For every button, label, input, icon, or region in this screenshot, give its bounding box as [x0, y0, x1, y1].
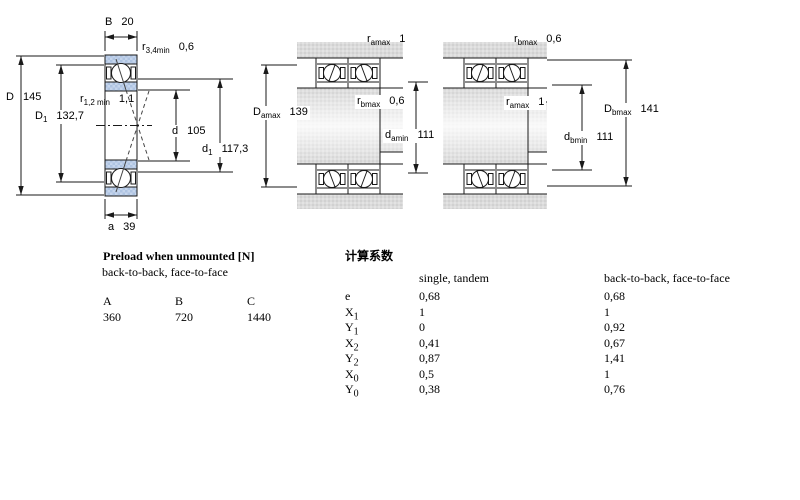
preload-col-C: C: [247, 294, 255, 308]
dim-label-ramax-mid: ramax1: [504, 96, 546, 110]
dim-label-rbmax-top: rbmax0,6: [514, 33, 562, 47]
preload-value-A: 360: [103, 310, 121, 324]
factors-row-X2: X2 0,41 0,67: [345, 336, 765, 352]
dim-label-rbmax-mid: rbmax0,6: [355, 95, 407, 109]
dim-label-Dbmax: Dbmax141: [602, 103, 661, 117]
factors-table-title: 计算系数: [345, 249, 393, 263]
factors-col-single-tandem: single, tandem: [419, 271, 489, 285]
dim-label-a: a39: [108, 221, 135, 233]
factors-row-Y0: Y0 0,38 0,76: [345, 382, 765, 398]
mounting-arrangement-a: [261, 42, 428, 209]
factors-row-Y2: Y2 0,87 1,41: [345, 351, 765, 367]
preload-col-A: A: [103, 294, 112, 308]
preload-col-B: B: [175, 294, 183, 308]
dim-label-D1: D1132,7: [33, 110, 86, 124]
mounting-arrangement-b: [443, 42, 632, 209]
bearing-datasheet: B20 r3,4min0,6 D145 r1,2 min1,1 D1132,7 …: [0, 0, 800, 500]
dim-label-bore-d: d105: [170, 125, 207, 137]
dim-label-r34: r3,4min0,6: [142, 41, 194, 55]
preload-value-B: 720: [175, 310, 193, 324]
dim-label-r12: r1,2 min1,1: [80, 93, 134, 107]
factors-row-e: e 0,68 0,68: [345, 289, 765, 305]
dim-label-width-B: B20: [105, 16, 134, 28]
factors-row-X0: X0 0,5 1: [345, 367, 765, 383]
factors-row-X1: X1 1 1: [345, 305, 765, 321]
dim-label-dbmin: dbmin111: [562, 131, 615, 145]
dim-label-ramax-top: ramax1: [367, 33, 405, 47]
factors-row-Y1: Y1 0 0,92: [345, 320, 765, 336]
preload-value-C: 1440: [247, 310, 271, 324]
preload-table-title: Preload when unmounted [N]: [103, 249, 254, 263]
dim-label-damin: damin111: [383, 129, 436, 143]
factors-col-back-to-back: back-to-back, face-to-face: [604, 271, 730, 285]
dim-label-Damax: Damax139: [251, 106, 310, 120]
dim-label-outer-diameter-D: D145: [6, 91, 41, 103]
preload-table-subtitle: back-to-back, face-to-face: [102, 265, 228, 279]
dim-label-d1: d1117,3: [200, 143, 250, 157]
